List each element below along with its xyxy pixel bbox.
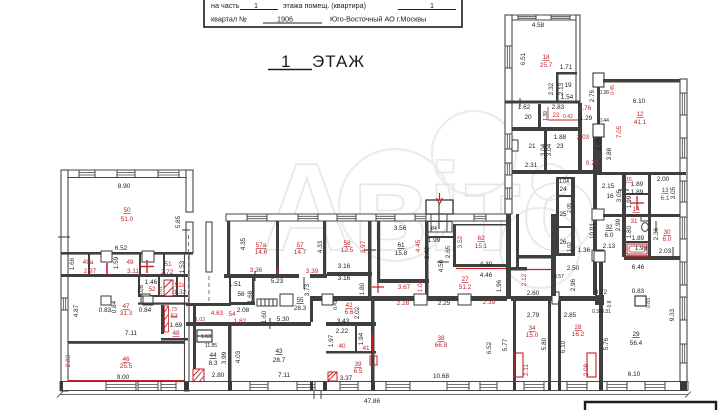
svg-text:9.33: 9.33 [669,308,676,321]
svg-text:5.85: 5.85 [175,215,182,228]
svg-text:31.3: 31.3 [120,310,133,317]
svg-text:52: 52 [148,286,156,293]
svg-text:9.00: 9.00 [117,374,130,381]
svg-text:4.33: 4.33 [317,240,324,253]
svg-text:1: 1 [281,52,290,71]
svg-text:1.82: 1.82 [234,318,247,325]
svg-text:1.89: 1.89 [631,181,644,188]
svg-text:0.45: 0.45 [610,85,616,95]
svg-text:1.88: 1.88 [554,134,567,141]
svg-text:20: 20 [524,114,532,121]
svg-text:2.25: 2.25 [438,300,451,307]
svg-text:10.68: 10.68 [433,373,449,380]
svg-text:2.69: 2.69 [596,137,603,150]
svg-text:11.85: 11.85 [205,343,217,349]
svg-text:1.68: 1.68 [247,290,254,303]
svg-text:4.46: 4.46 [480,272,493,279]
svg-text:1.71: 1.71 [560,64,573,71]
svg-text:40: 40 [338,343,346,350]
svg-text:3.46: 3.46 [424,246,431,259]
svg-text:4.30: 4.30 [480,261,493,268]
svg-text:14.6: 14.6 [255,249,268,256]
svg-text:1.51: 1.51 [229,281,242,288]
svg-text:3.16: 3.16 [338,275,351,282]
svg-text:2.05: 2.05 [567,203,573,213]
svg-text:3.04: 3.04 [546,143,553,156]
svg-text:2.15: 2.15 [602,183,615,190]
svg-text:15.8: 15.8 [395,250,408,257]
svg-text:6.1: 6.1 [661,195,670,202]
svg-text:7.05: 7.05 [616,125,623,138]
svg-text:2.08: 2.08 [237,307,250,314]
svg-text:39: 39 [354,361,362,368]
svg-text:6.10: 6.10 [633,98,646,105]
svg-text:2.65: 2.65 [445,245,452,258]
svg-text:3.88: 3.88 [606,147,613,160]
svg-text:1906: 1906 [277,15,293,24]
svg-text:3.05: 3.05 [670,186,677,199]
svg-text:52а: 52а [175,282,186,289]
svg-text:18: 18 [542,54,550,61]
svg-text:4.35: 4.35 [240,237,247,250]
svg-text:ЭТАЖ: ЭТАЖ [312,52,365,71]
svg-text:1.29: 1.29 [580,115,593,122]
svg-text:1.89: 1.89 [632,235,645,242]
svg-text:53: 53 [170,313,178,320]
svg-text:3.43: 3.43 [337,318,350,325]
svg-text:28.3: 28.3 [294,305,307,312]
svg-text:1.93: 1.93 [635,245,648,252]
svg-text:0.31: 0.31 [601,309,611,315]
svg-text:1.63: 1.63 [201,334,211,340]
svg-text:16.2: 16.2 [572,331,585,338]
svg-text:Юго-Восточный АО г.Москвы: Юго-Восточный АО г.Москвы [330,15,426,24]
svg-text:3.99: 3.99 [221,351,228,364]
svg-text:2.76: 2.76 [579,105,592,112]
svg-text:2.03: 2.03 [577,134,590,141]
svg-text:49: 49 [126,259,134,266]
svg-text:2.85: 2.85 [564,312,577,319]
svg-text:7.11: 7.11 [278,372,290,379]
svg-text:2.50: 2.50 [567,265,580,272]
svg-text:23: 23 [556,143,564,150]
svg-text:56.4: 56.4 [630,340,643,347]
svg-text:6.52: 6.52 [115,245,128,252]
svg-text:38: 38 [437,335,445,342]
svg-text:5.76: 5.76 [603,337,610,350]
svg-text:34: 34 [528,325,536,332]
svg-text:3.67: 3.67 [398,284,411,291]
svg-text:13: 13 [661,187,669,194]
svg-text:12.5: 12.5 [341,247,354,254]
svg-text:0.84: 0.84 [139,307,152,314]
svg-text:0.72: 0.72 [595,289,608,296]
svg-text:25.7: 25.7 [540,62,553,69]
svg-text:30: 30 [663,229,671,236]
svg-text:1.36: 1.36 [578,247,591,254]
svg-text:1.32: 1.32 [174,289,187,296]
svg-text:66.8: 66.8 [435,342,448,349]
svg-text:7.11: 7.11 [125,330,137,337]
svg-text:57: 57 [296,242,304,249]
svg-text:2.00: 2.00 [657,176,670,183]
svg-text:2.96: 2.96 [570,278,577,291]
svg-text:1.97: 1.97 [328,334,335,347]
svg-text:44: 44 [209,352,217,359]
svg-text:5.23: 5.23 [271,278,284,285]
svg-text:43: 43 [275,348,283,355]
svg-text:2.72: 2.72 [161,269,174,276]
svg-text:22: 22 [552,112,560,119]
svg-text:1: 1 [430,1,434,10]
svg-text:0.83: 0.83 [632,288,645,295]
svg-text:49а: 49а [83,259,94,266]
svg-text:15.1: 15.1 [475,243,488,250]
svg-text:26: 26 [559,239,567,246]
svg-text:41: 41 [362,345,370,352]
svg-text:0.84: 0.84 [111,300,118,313]
svg-text:0.73: 0.73 [586,160,599,167]
svg-text:2.83: 2.83 [552,104,565,111]
svg-text:4.87: 4.87 [73,304,80,317]
svg-text:25.5: 25.5 [120,363,133,370]
svg-text:3.73: 3.73 [304,283,311,296]
svg-text:51: 51 [164,261,172,268]
svg-text:2.76: 2.76 [589,89,596,102]
svg-text:3.97: 3.97 [360,240,367,253]
svg-text:6.6: 6.6 [345,309,354,316]
svg-text:3.36: 3.36 [250,267,263,274]
svg-text:3.52: 3.52 [457,235,464,248]
svg-text:2.31: 2.31 [525,162,538,169]
svg-text:46: 46 [122,356,130,363]
svg-text:47.86: 47.86 [364,398,380,405]
svg-text:1: 1 [254,1,258,10]
svg-text:1.54: 1.54 [561,94,574,101]
svg-text:2.97: 2.97 [84,268,97,275]
svg-text:2.32: 2.32 [548,82,555,95]
svg-text:5.30: 5.30 [277,316,290,323]
svg-text:2.06: 2.06 [138,284,145,297]
svg-text:3.39: 3.39 [306,268,319,275]
svg-text:2.36: 2.36 [653,227,660,240]
svg-text:6.46: 6.46 [632,264,645,271]
svg-text:1.66: 1.66 [69,257,76,270]
svg-text:15.0: 15.0 [526,332,539,339]
svg-text:4.45: 4.45 [415,239,422,252]
svg-text:50: 50 [123,207,131,214]
svg-text:25: 25 [559,211,567,218]
svg-text:на часть: на часть [211,1,240,10]
svg-text:54: 54 [228,311,236,318]
svg-text:24: 24 [559,186,567,193]
svg-text:2.03: 2.03 [659,248,672,255]
svg-text:1.53: 1.53 [179,260,186,273]
svg-text:3.05: 3.05 [616,189,623,202]
svg-text:2.08: 2.08 [583,363,590,376]
svg-text:2.02: 2.02 [354,306,361,319]
svg-text:8.90: 8.90 [118,183,131,190]
svg-text:2.22: 2.22 [336,328,349,335]
svg-text:1.89: 1.89 [631,189,644,196]
svg-text:4.63: 4.63 [211,310,224,317]
svg-text:2.11: 2.11 [523,364,530,376]
svg-text:3.37: 3.37 [340,375,353,382]
svg-text:1.99: 1.99 [428,237,441,244]
svg-text:6.0: 6.0 [605,232,614,239]
svg-text:4.50: 4.50 [438,259,445,272]
svg-text:10.01: 10.01 [589,223,596,239]
svg-text:6.52: 6.52 [486,341,493,354]
svg-text:1.69: 1.69 [170,322,183,329]
svg-text:55: 55 [296,297,304,304]
svg-text:42: 42 [345,302,353,309]
svg-text:0.83: 0.83 [646,298,652,308]
svg-text:6.51: 6.51 [520,52,527,65]
svg-text:1.04: 1.04 [559,179,569,185]
svg-text:0.42: 0.42 [563,114,573,120]
svg-text:1.96: 1.96 [496,279,503,292]
svg-text:0.61: 0.61 [158,286,164,296]
svg-text:62: 62 [477,235,485,242]
svg-text:0.57: 0.57 [554,274,564,280]
svg-text:2.13: 2.13 [603,243,616,250]
svg-text:12: 12 [636,111,644,118]
svg-text:2.28: 2.28 [397,300,410,307]
svg-text:1.46: 1.46 [145,279,158,286]
svg-text:3.16: 3.16 [338,263,351,270]
svg-text:0.41: 0.41 [333,300,339,310]
svg-text:4.03: 4.03 [235,350,242,363]
svg-text:19: 19 [564,82,572,89]
svg-text:29: 29 [632,331,640,338]
svg-text:6.10: 6.10 [628,371,641,378]
svg-text:этажа помещ. (квартира): этажа помещ. (квартира) [283,1,366,10]
svg-text:1.02: 1.02 [567,242,573,252]
svg-text:51.0: 51.0 [121,216,134,223]
svg-text:1.59: 1.59 [113,256,120,269]
svg-text:32: 32 [605,224,613,231]
svg-text:квартал №: квартал № [211,15,247,24]
svg-text:0.38: 0.38 [599,90,609,96]
svg-text:16: 16 [606,193,614,200]
svg-text:8.3: 8.3 [209,360,218,367]
svg-text:0.44: 0.44 [599,118,609,124]
svg-text:0.83: 0.83 [99,307,112,314]
svg-text:2.80: 2.80 [212,372,225,379]
svg-text:1.80: 1.80 [359,282,366,295]
svg-text:56: 56 [237,291,245,298]
svg-text:14: 14 [632,206,640,213]
svg-text:0.8: 0.8 [607,300,613,307]
svg-text:21: 21 [528,143,536,150]
svg-text:1.62: 1.62 [518,104,531,111]
svg-text:2.99: 2.99 [615,218,622,231]
svg-text:57а: 57а [256,242,267,249]
svg-text:51.2: 51.2 [459,284,472,291]
svg-text:2.12: 2.12 [521,273,528,286]
svg-text:27: 27 [461,276,469,283]
svg-text:84: 84 [431,226,437,232]
svg-text:6.0: 6.0 [663,236,672,243]
svg-text:28.7: 28.7 [273,357,286,364]
svg-text:5.77: 5.77 [502,338,509,351]
svg-text:1.03: 1.03 [195,317,205,323]
svg-text:6.10: 6.10 [560,340,567,353]
svg-text:4.58: 4.58 [532,22,545,29]
svg-text:2.79: 2.79 [527,312,540,319]
svg-text:3.11: 3.11 [127,268,139,275]
svg-text:1.60: 1.60 [261,310,268,323]
svg-text:1.39: 1.39 [543,111,549,121]
svg-text:5.80: 5.80 [541,337,548,350]
svg-text:2.83: 2.83 [65,354,72,367]
svg-text:2.60: 2.60 [527,290,540,297]
svg-text:28: 28 [574,324,582,331]
svg-text:31: 31 [630,218,638,225]
svg-text:3.56: 3.56 [394,225,407,232]
svg-text:58: 58 [343,240,351,247]
svg-text:1.06: 1.06 [417,279,424,292]
svg-text:6.5: 6.5 [354,368,363,375]
svg-text:61: 61 [397,242,405,249]
svg-text:1.94: 1.94 [358,332,365,345]
svg-text:41.1: 41.1 [634,119,647,126]
svg-text:14.7: 14.7 [294,249,307,256]
svg-text:48: 48 [172,330,180,337]
svg-text:47: 47 [122,303,130,310]
svg-text:2.39: 2.39 [483,299,496,306]
